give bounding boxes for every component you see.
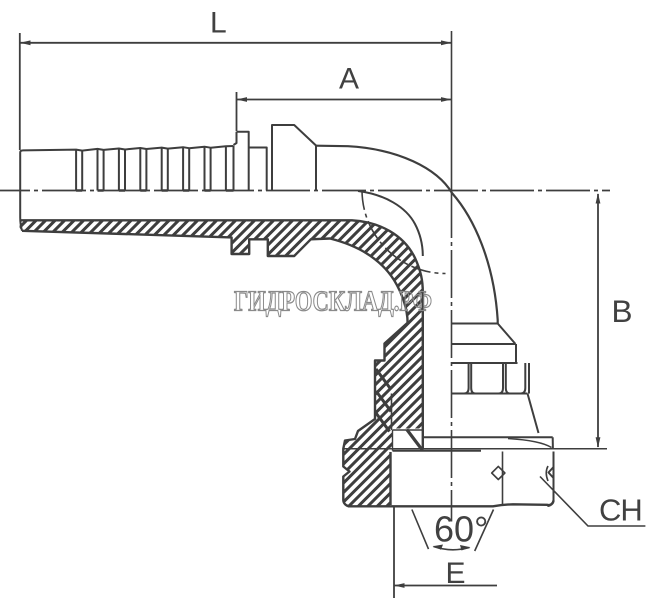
svg-text:A: A xyxy=(339,63,359,96)
svg-text:CH: CH xyxy=(599,493,642,528)
svg-text:E: E xyxy=(446,557,466,590)
svg-text:B: B xyxy=(612,293,633,329)
svg-text:60°: 60° xyxy=(434,509,488,550)
svg-text:ГИДРОСКЛАД.РФ: ГИДРОСКЛАД.РФ xyxy=(234,287,432,318)
svg-text:L: L xyxy=(210,7,227,40)
